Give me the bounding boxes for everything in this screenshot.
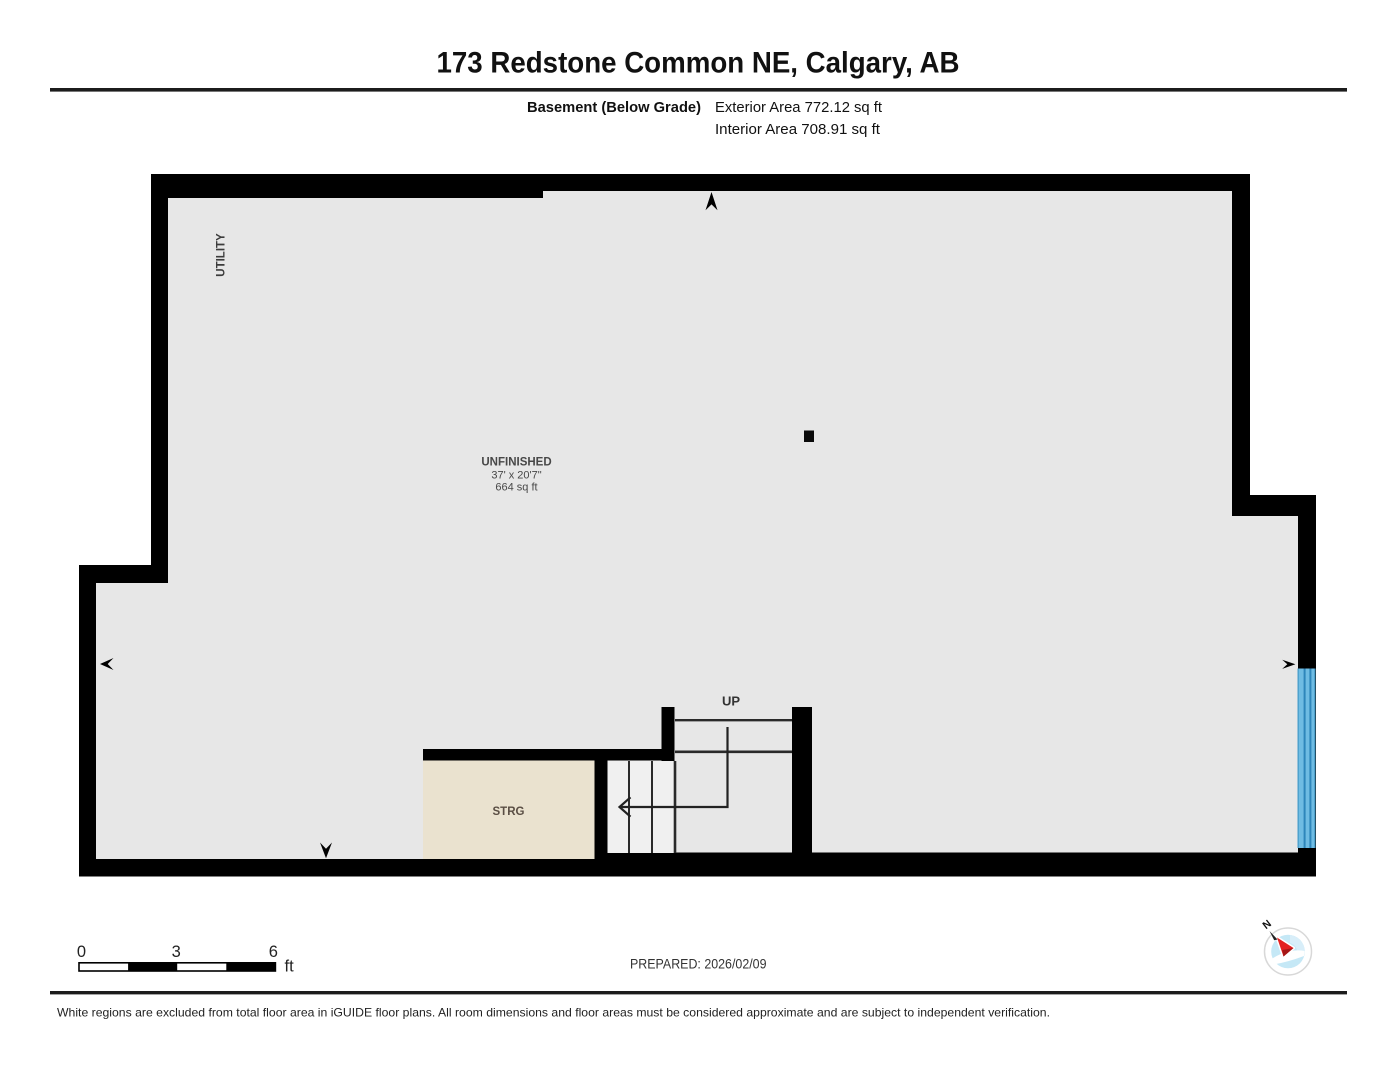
svg-text:Exterior Area 772.12 sq ft: Exterior Area 772.12 sq ft [715, 100, 882, 116]
svg-text:UNFINISHED: UNFINISHED [481, 457, 551, 469]
svg-text:Basement (Below Grade): Basement (Below Grade) [527, 99, 701, 116]
svg-text:PREPARED: 2026/02/09: PREPARED: 2026/02/09 [630, 957, 767, 972]
svg-text:White regions are excluded fro: White regions are excluded from total fl… [57, 1006, 1050, 1020]
svg-text:173 Redstone Common NE, Calgar: 173 Redstone Common NE, Calgary, AB [437, 47, 960, 80]
svg-text:ft: ft [285, 958, 295, 976]
svg-text:37' x 20'7": 37' x 20'7" [491, 470, 541, 482]
svg-text:0: 0 [77, 943, 86, 961]
svg-text:STRG: STRG [493, 806, 525, 818]
svg-text:UTILITY: UTILITY [216, 233, 228, 277]
svg-text:6: 6 [269, 943, 278, 961]
svg-text:UP: UP [722, 694, 740, 709]
svg-text:N: N [1260, 918, 1273, 932]
svg-text:3: 3 [172, 943, 181, 961]
svg-text:664 sq ft: 664 sq ft [495, 482, 537, 494]
svg-text:Interior Area 708.91 sq ft: Interior Area 708.91 sq ft [715, 122, 880, 138]
